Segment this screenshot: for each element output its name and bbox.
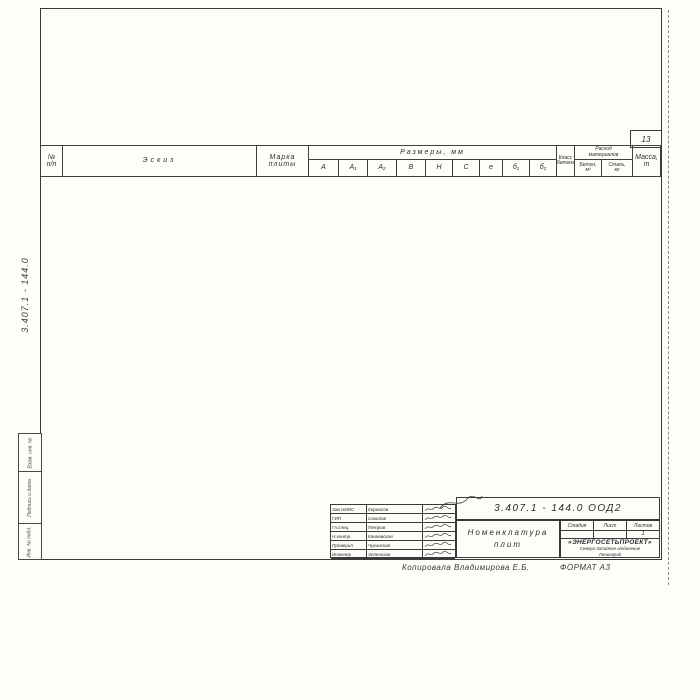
signer-name: Канаевская <box>367 532 423 541</box>
stamp-inv-podl: Инв. № подл. <box>18 523 42 560</box>
col-b-header: В <box>397 160 426 177</box>
signer-role: Инженер <box>331 550 367 559</box>
sheet-cut-line <box>668 10 669 585</box>
titleblock-title: Номенклатура плит <box>456 520 560 558</box>
sheet-value <box>594 531 627 538</box>
stadia-value-row: 1 <box>561 531 659 539</box>
signer-role: Н.контр. <box>331 532 367 541</box>
col-a-header: А <box>309 160 339 177</box>
signer-name: Петров <box>367 523 423 532</box>
signer-name: Чукинская <box>367 541 423 550</box>
col-a1-header: А₁ <box>339 160 368 177</box>
signature-flourish <box>438 494 484 510</box>
signer-signature <box>423 532 455 541</box>
col-steel-header: Сталь, кг <box>602 160 633 177</box>
signer-role: Зав.НИИС <box>331 505 367 514</box>
drawing-sheet: 13 3.407.1 - 144.0 Взам. инв. № Подпись … <box>0 0 700 700</box>
signer-name: Соколов <box>367 514 423 523</box>
signer-role: Проверил <box>331 541 367 550</box>
col-mass-header: Масса, т <box>633 146 661 177</box>
signer-role: ГИП <box>331 514 367 523</box>
sheets-value: 1 <box>627 531 659 538</box>
signature-mark <box>424 532 452 540</box>
signer-signature <box>423 523 455 532</box>
signer-signature <box>423 550 455 559</box>
signature-mark <box>424 523 452 531</box>
consumption-group-header: Расход материалов <box>575 146 633 160</box>
organization-block: «ЭНЕРГОСЕТЬПРОЕКТ» Северо-Западное отдел… <box>561 539 659 557</box>
col-e-header: е <box>480 160 503 177</box>
sheets-label: Листов <box>627 521 659 530</box>
organization-city: Ленинград <box>599 552 621 557</box>
stage-value <box>561 531 594 538</box>
stamp-vzam-inv: Взам. инв. № <box>18 433 42 473</box>
col-concrete-header: Бетон, м³ <box>575 160 602 177</box>
plate-table: № п/п Эскиз Марка плиты Размеры, мм Клас… <box>40 145 661 177</box>
signature-mark <box>424 514 452 522</box>
col-b1-header: б₁ <box>503 160 530 177</box>
col-a2-header: А₂ <box>368 160 397 177</box>
col-sketch-header: Эскиз <box>63 146 257 177</box>
titleblock-stadia: Стадия Лист Листов 1 «ЭНЕРГОСЕТЬПРОЕКТ» … <box>560 520 660 558</box>
titleblock-signers: Зав.НИИСКирносов ГИПСоколов Гл.спец.Петр… <box>330 504 456 558</box>
dims-group-header: Размеры, мм <box>309 146 557 160</box>
format-note: ФОРМАТ А3 <box>560 563 610 572</box>
sheet-label: Лист <box>594 521 627 530</box>
copy-note: Копировала Владимирова Е.Б. <box>402 563 530 572</box>
doc-code-vertical: 3.407.1 - 144.0 <box>20 235 30 355</box>
signer-name: Кирносов <box>367 505 423 514</box>
stadia-header-row: Стадия Лист Листов <box>561 521 659 531</box>
signature-mark <box>424 550 452 558</box>
signer-name: Зеленская <box>367 550 423 559</box>
drawing-frame <box>40 8 662 560</box>
page-number: 13 <box>642 135 651 144</box>
col-c-header: С <box>453 160 480 177</box>
col-class-header: Класс бетона <box>557 146 575 177</box>
signer-signature <box>423 514 455 523</box>
organization-name: «ЭНЕРГОСЕТЬПРОЕКТ» <box>568 539 652 547</box>
header-row-1: № п/п Эскиз Марка плиты Размеры, мм Клас… <box>41 146 661 160</box>
col-mark-header: Марка плиты <box>257 146 309 177</box>
stage-label: Стадия <box>561 521 594 530</box>
titleblock-doc-number: 3.407.1 - 144.0 ООД2 <box>456 497 660 520</box>
signer-signature <box>423 541 455 550</box>
col-num-header: № п/п <box>41 146 63 177</box>
stamp-podpis-data: Подпись и дата <box>18 471 42 525</box>
signature-mark <box>424 541 452 549</box>
col-b2-header: б₂ <box>530 160 557 177</box>
col-h-header: Н <box>426 160 453 177</box>
signer-role: Гл.спец. <box>331 523 367 532</box>
